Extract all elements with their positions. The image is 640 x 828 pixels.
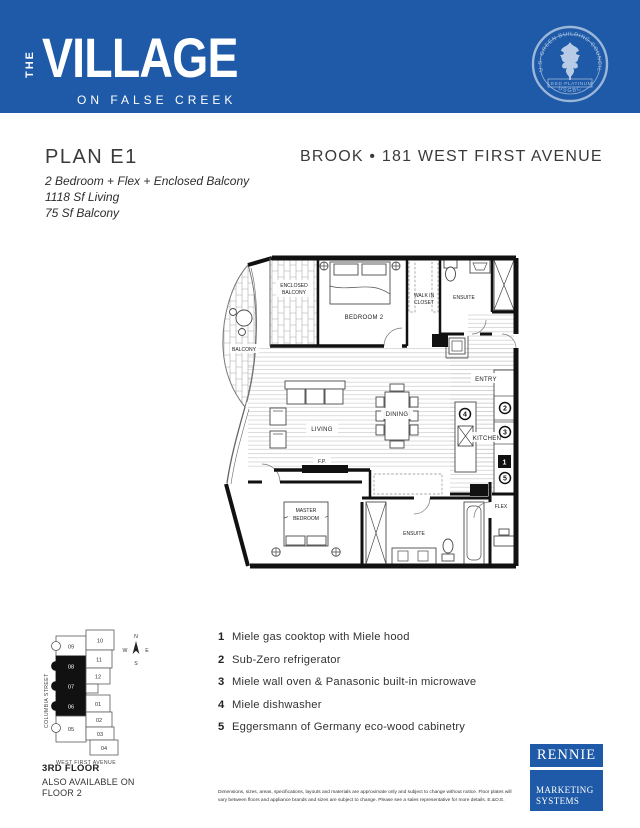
brochure-page: THE VILLAGE ON FALSE CREEK U.S. GREEN BU… bbox=[0, 0, 640, 828]
svg-text:09: 09 bbox=[68, 645, 74, 651]
svg-text:W: W bbox=[123, 648, 128, 654]
svg-text:07: 07 bbox=[68, 685, 74, 691]
legend-item: 1 Miele gas cooktop with Miele hood bbox=[218, 631, 476, 654]
building-title: BROOK • 181 WEST FIRST AVENUE bbox=[300, 148, 596, 166]
legend-item-number: 3 bbox=[218, 676, 232, 688]
header-banner: THE VILLAGE ON FALSE CREEK U.S. GREEN BU… bbox=[0, 0, 640, 113]
shower-top-icon bbox=[494, 260, 514, 310]
svg-text:01: 01 bbox=[95, 702, 101, 708]
label-bedroom2: BEDROOM 2 bbox=[345, 315, 384, 321]
svg-text:12: 12 bbox=[95, 675, 101, 681]
enclosed-balcony-floor bbox=[270, 258, 317, 346]
label-walkin-2: CLOSET bbox=[414, 300, 434, 306]
availability-line2: FLOOR 2 bbox=[42, 788, 82, 798]
legend-item-number: 4 bbox=[218, 699, 232, 711]
svg-text:08: 08 bbox=[68, 665, 74, 671]
floor-label: 3RD FLOOR bbox=[42, 763, 100, 774]
svg-text:S: S bbox=[134, 661, 138, 667]
plan-features: 2 Bedroom + Flex + Enclosed Balcony 1118… bbox=[45, 173, 249, 221]
bed2-icon bbox=[320, 262, 400, 304]
feature-line: 75 Sf Balcony bbox=[45, 205, 249, 221]
appliance-legend: 1 Miele gas cooktop with Miele hood 2 Su… bbox=[218, 631, 476, 744]
label-ensuite-bottom: ENSUITE bbox=[403, 531, 425, 537]
svg-text:3: 3 bbox=[503, 430, 507, 437]
svg-text:10: 10 bbox=[97, 639, 103, 645]
curved-window bbox=[227, 407, 245, 483]
legend-item: 4 Miele dishwasher bbox=[218, 699, 476, 722]
leed-seal-icon: U.S. GREEN BUILDING COUNCIL LEED PLATINU… bbox=[528, 22, 612, 106]
label-dining: DINING bbox=[386, 412, 409, 418]
legend-item: 5 Eggersmann of Germany eco-wood cabinet… bbox=[218, 721, 476, 744]
availability-line1: ALSO AVAILABLE ON bbox=[42, 777, 135, 787]
svg-text:03: 03 bbox=[97, 732, 103, 738]
marker-2: 2 bbox=[500, 403, 511, 414]
hall-closet bbox=[374, 474, 442, 494]
svg-text:11: 11 bbox=[96, 658, 102, 664]
label-flex: FLEX bbox=[495, 504, 508, 510]
floorplan-drawing: ENCLOSED BALCONY BALCONY BEDROOM 2 WALK … bbox=[218, 250, 548, 580]
svg-text:04: 04 bbox=[101, 746, 107, 752]
ensuite-top-fixtures bbox=[444, 260, 490, 281]
plan-name: PLAN E1 bbox=[45, 146, 138, 169]
disclaimer: Dimensions, sizes, areas, specifications… bbox=[218, 789, 512, 804]
brand-tagline: ON FALSE CREEK bbox=[77, 93, 203, 107]
label-living: LIVING bbox=[311, 427, 333, 433]
legend-item-text: Miele dishwasher bbox=[232, 699, 322, 711]
disclaimer-line1: Dimensions, sizes, areas, specifications… bbox=[218, 789, 512, 797]
legend-item-text: Eggersmann of Germany eco-wood cabinetry bbox=[232, 721, 465, 733]
leaf-emblem-icon bbox=[560, 42, 580, 80]
svg-text:1: 1 bbox=[503, 460, 507, 467]
label-enclosed-balcony-1: ENCLOSED bbox=[280, 283, 308, 289]
keyplan-right-column: 10 11 12 01 02 03 04 bbox=[86, 630, 118, 755]
rennie-subtitle-line2: SYSTEMS bbox=[536, 796, 603, 807]
svg-text:2: 2 bbox=[503, 406, 507, 413]
shower-bottom-icon bbox=[366, 502, 386, 564]
sofa-icon bbox=[285, 381, 345, 404]
marker-4: 4 bbox=[460, 409, 471, 420]
label-ensuite-top: ENSUITE bbox=[453, 295, 475, 301]
seal-ribbon-text: LEED PLATINUM bbox=[548, 81, 592, 87]
label-enclosed-balcony-2: BALCONY bbox=[282, 290, 307, 296]
rennie-name: RENNIE bbox=[530, 744, 603, 767]
label-master-2: BEDROOM bbox=[293, 516, 319, 522]
vanity-sinks-icon bbox=[392, 548, 436, 564]
svg-text:06: 06 bbox=[68, 705, 74, 711]
label-balcony: BALCONY bbox=[232, 347, 257, 353]
bathtub-icon bbox=[464, 502, 484, 564]
label-entry: ENTRY bbox=[475, 377, 497, 383]
label-fireplace: F.P. bbox=[318, 459, 326, 465]
entry-floor bbox=[468, 312, 514, 348]
legend-item-text: Miele gas cooktop with Miele hood bbox=[232, 631, 410, 643]
svg-text:02: 02 bbox=[96, 718, 102, 724]
marker-5: 5 bbox=[500, 473, 511, 484]
legend-item-number: 1 bbox=[218, 631, 232, 643]
svg-text:05: 05 bbox=[68, 727, 74, 733]
keyplan-left-column: 09 08 07 06 05 bbox=[52, 636, 87, 742]
legend-item-text: Sub-Zero refrigerator bbox=[232, 654, 341, 666]
rennie-subtitle-line1: MARKETING bbox=[536, 785, 603, 796]
svg-text:5: 5 bbox=[503, 476, 507, 483]
toilet-icon bbox=[442, 539, 454, 561]
disclaimer-line2: vary between floors and appliance brands… bbox=[218, 797, 512, 805]
label-walkin-1: WALK IN bbox=[414, 293, 435, 299]
brand-name: VILLAGE bbox=[42, 32, 238, 84]
legend-item-text: Miele wall oven & Panasonic built-in mic… bbox=[232, 676, 476, 688]
rennie-logo: RENNIE MARKETING SYSTEMS bbox=[530, 744, 603, 811]
legend-item: 3 Miele wall oven & Panasonic built-in m… bbox=[218, 676, 476, 699]
building-keyplan: 09 08 07 06 05 10 11 12 01 02 03 04 COLU… bbox=[40, 620, 160, 770]
rennie-subtitle: MARKETING SYSTEMS bbox=[530, 770, 603, 811]
marker-3: 3 bbox=[500, 427, 511, 438]
compass-icon: N W E S bbox=[123, 634, 150, 667]
street-columbia: COLUMBIA STREET bbox=[44, 673, 50, 728]
fireplace-hearth bbox=[302, 465, 348, 473]
svg-text:4: 4 bbox=[463, 412, 467, 419]
feature-line: 1118 Sf Living bbox=[45, 189, 249, 205]
feature-line: 2 Bedroom + Flex + Enclosed Balcony bbox=[45, 173, 249, 189]
label-kitchen: KITCHEN bbox=[473, 436, 501, 442]
label-master-1: MASTER bbox=[296, 508, 317, 514]
legend-item-number: 2 bbox=[218, 654, 232, 666]
marker-1: 1 bbox=[498, 455, 511, 468]
legend-item-number: 5 bbox=[218, 721, 232, 733]
svg-text:N: N bbox=[134, 634, 138, 640]
svg-text:E: E bbox=[145, 648, 149, 654]
flex-desk-icon bbox=[494, 529, 514, 546]
legend-item: 2 Sub-Zero refrigerator bbox=[218, 654, 476, 677]
